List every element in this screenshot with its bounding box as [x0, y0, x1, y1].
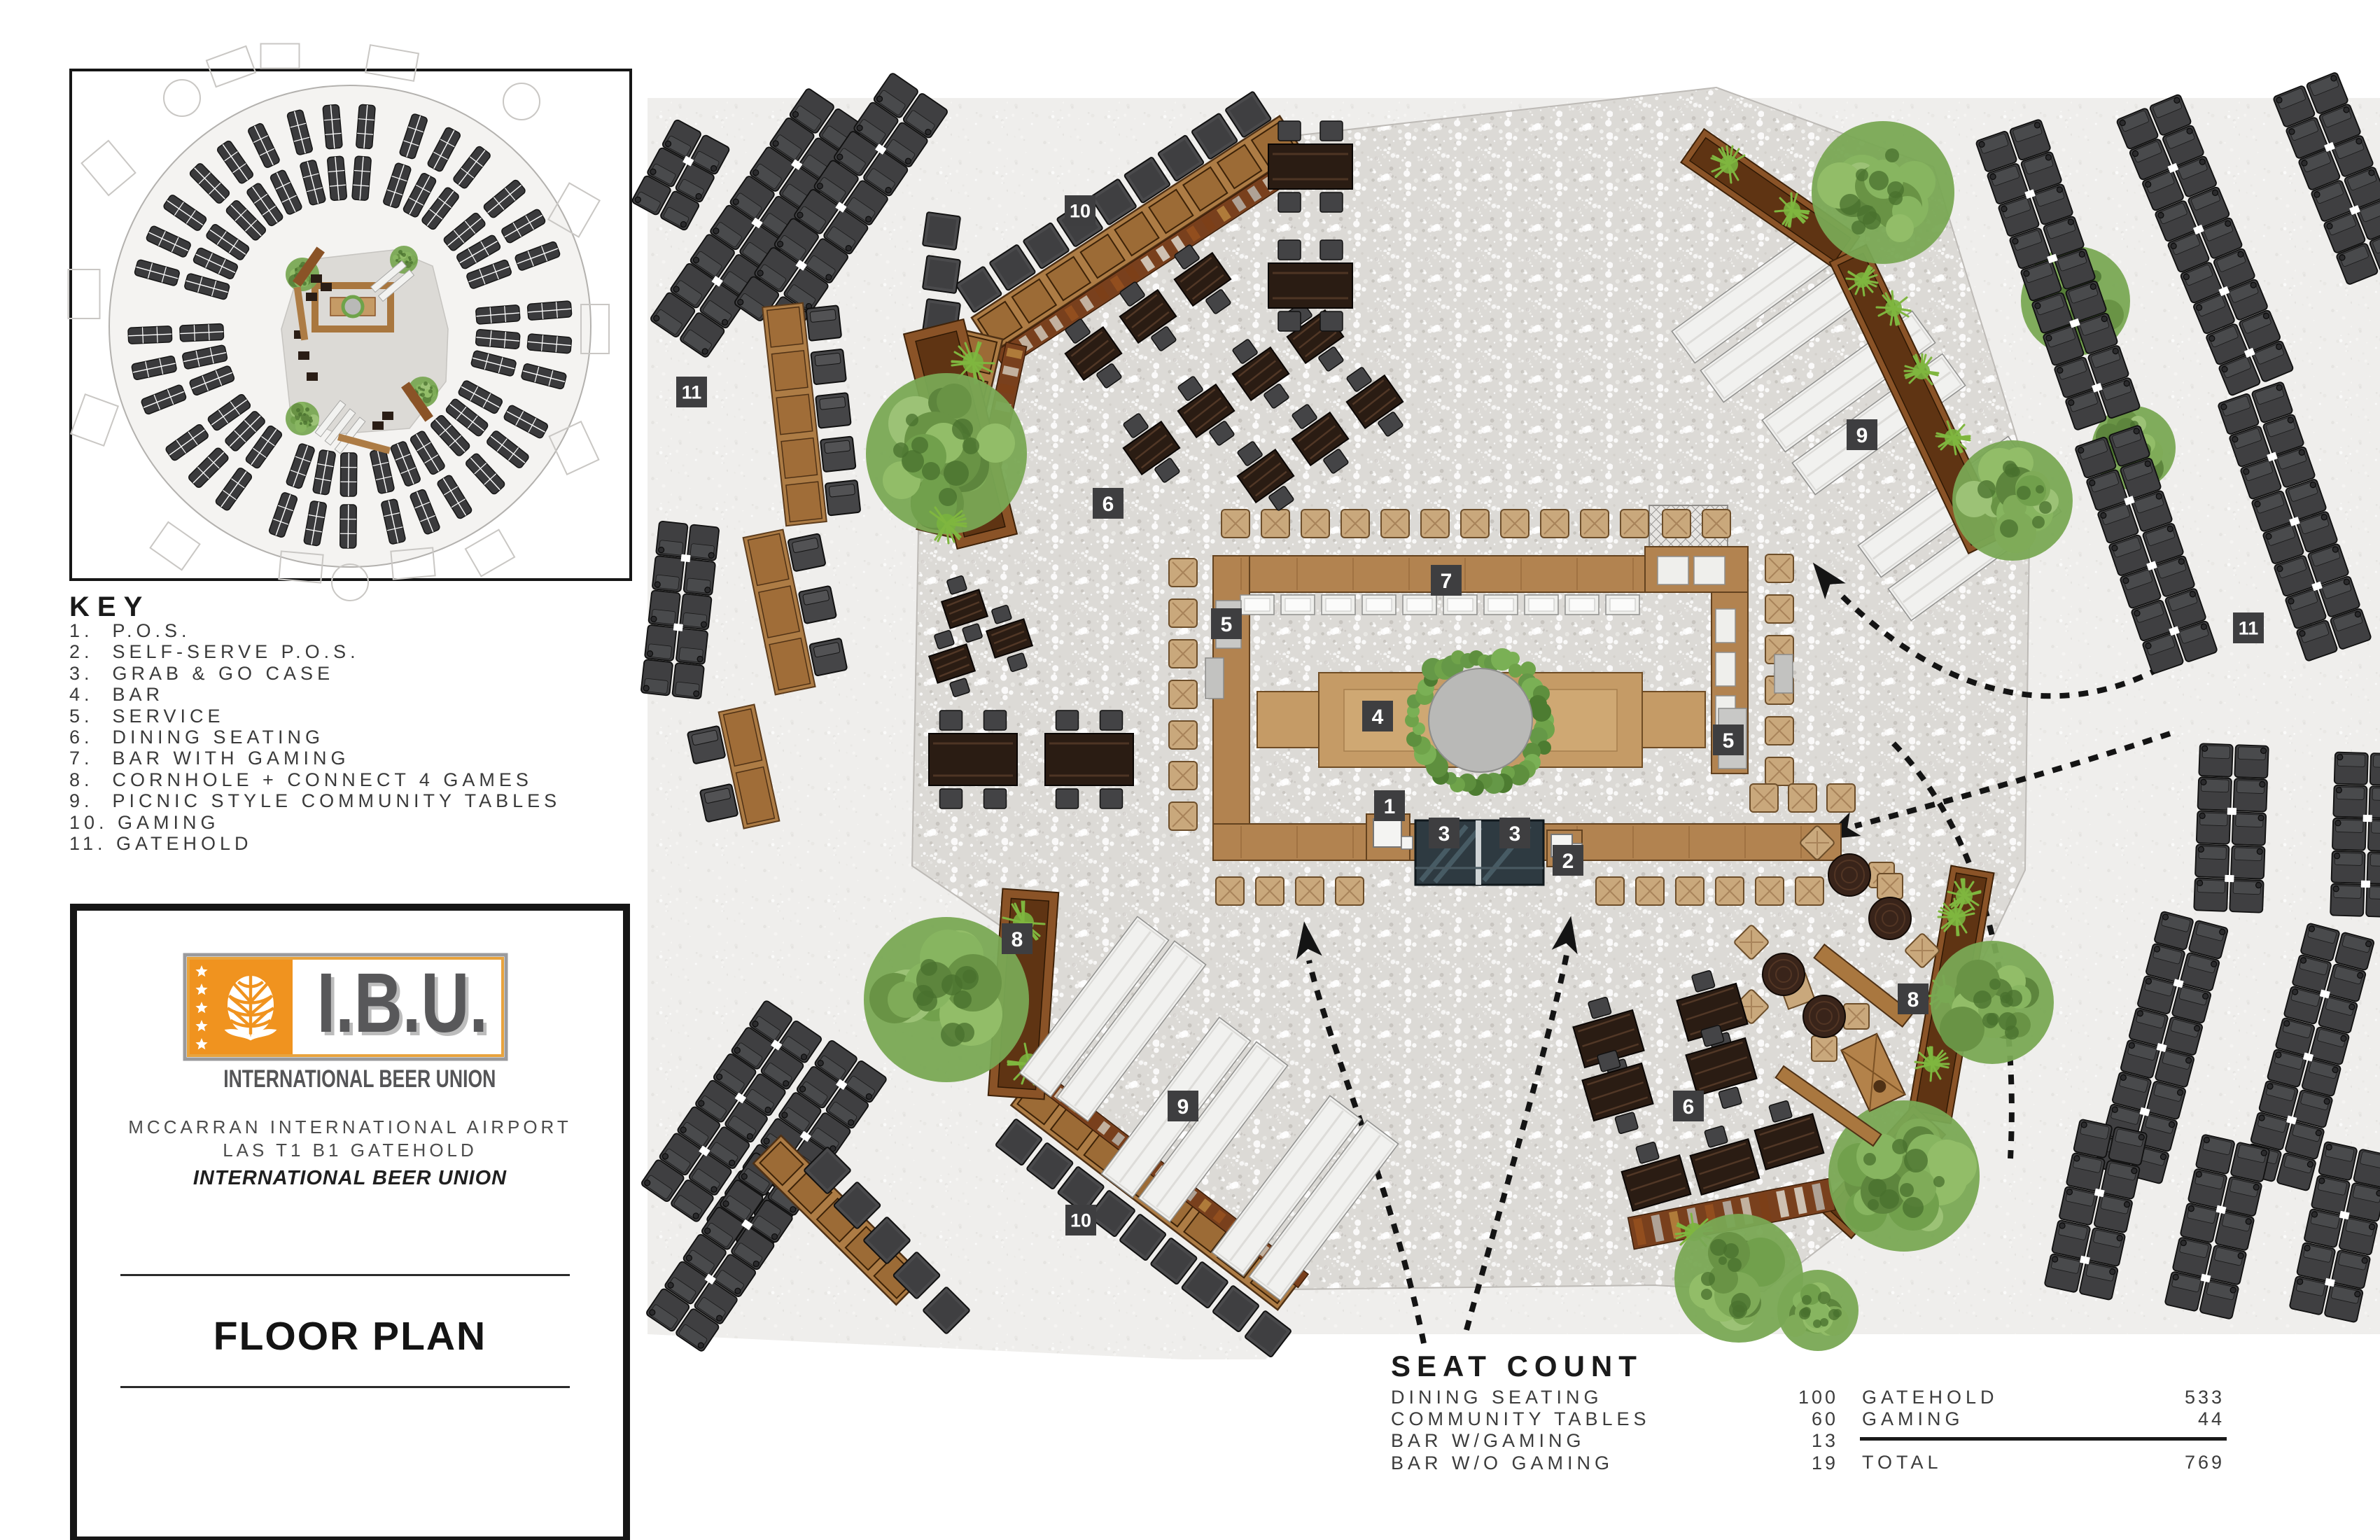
svg-text:3: 3: [1438, 822, 1450, 846]
svg-text:11: 11: [2239, 618, 2259, 639]
svg-text:3: 3: [1509, 822, 1521, 846]
svg-text:9: 9: [1177, 1095, 1189, 1119]
svg-text:6: 6: [1683, 1095, 1695, 1119]
svg-text:10: 10: [1070, 201, 1091, 222]
svg-text:7: 7: [1441, 570, 1452, 593]
svg-text:10: 10: [1070, 1210, 1091, 1231]
svg-text:4: 4: [1372, 706, 1384, 729]
svg-text:8: 8: [1907, 988, 1919, 1011]
svg-text:11: 11: [682, 382, 702, 403]
svg-text:8: 8: [1011, 928, 1023, 951]
svg-text:5: 5: [1221, 613, 1233, 636]
svg-text:5: 5: [1723, 729, 1735, 752]
svg-text:6: 6: [1102, 493, 1114, 516]
svg-text:9: 9: [1856, 424, 1868, 447]
svg-text:2: 2: [1562, 850, 1574, 873]
svg-text:1: 1: [1384, 795, 1396, 818]
